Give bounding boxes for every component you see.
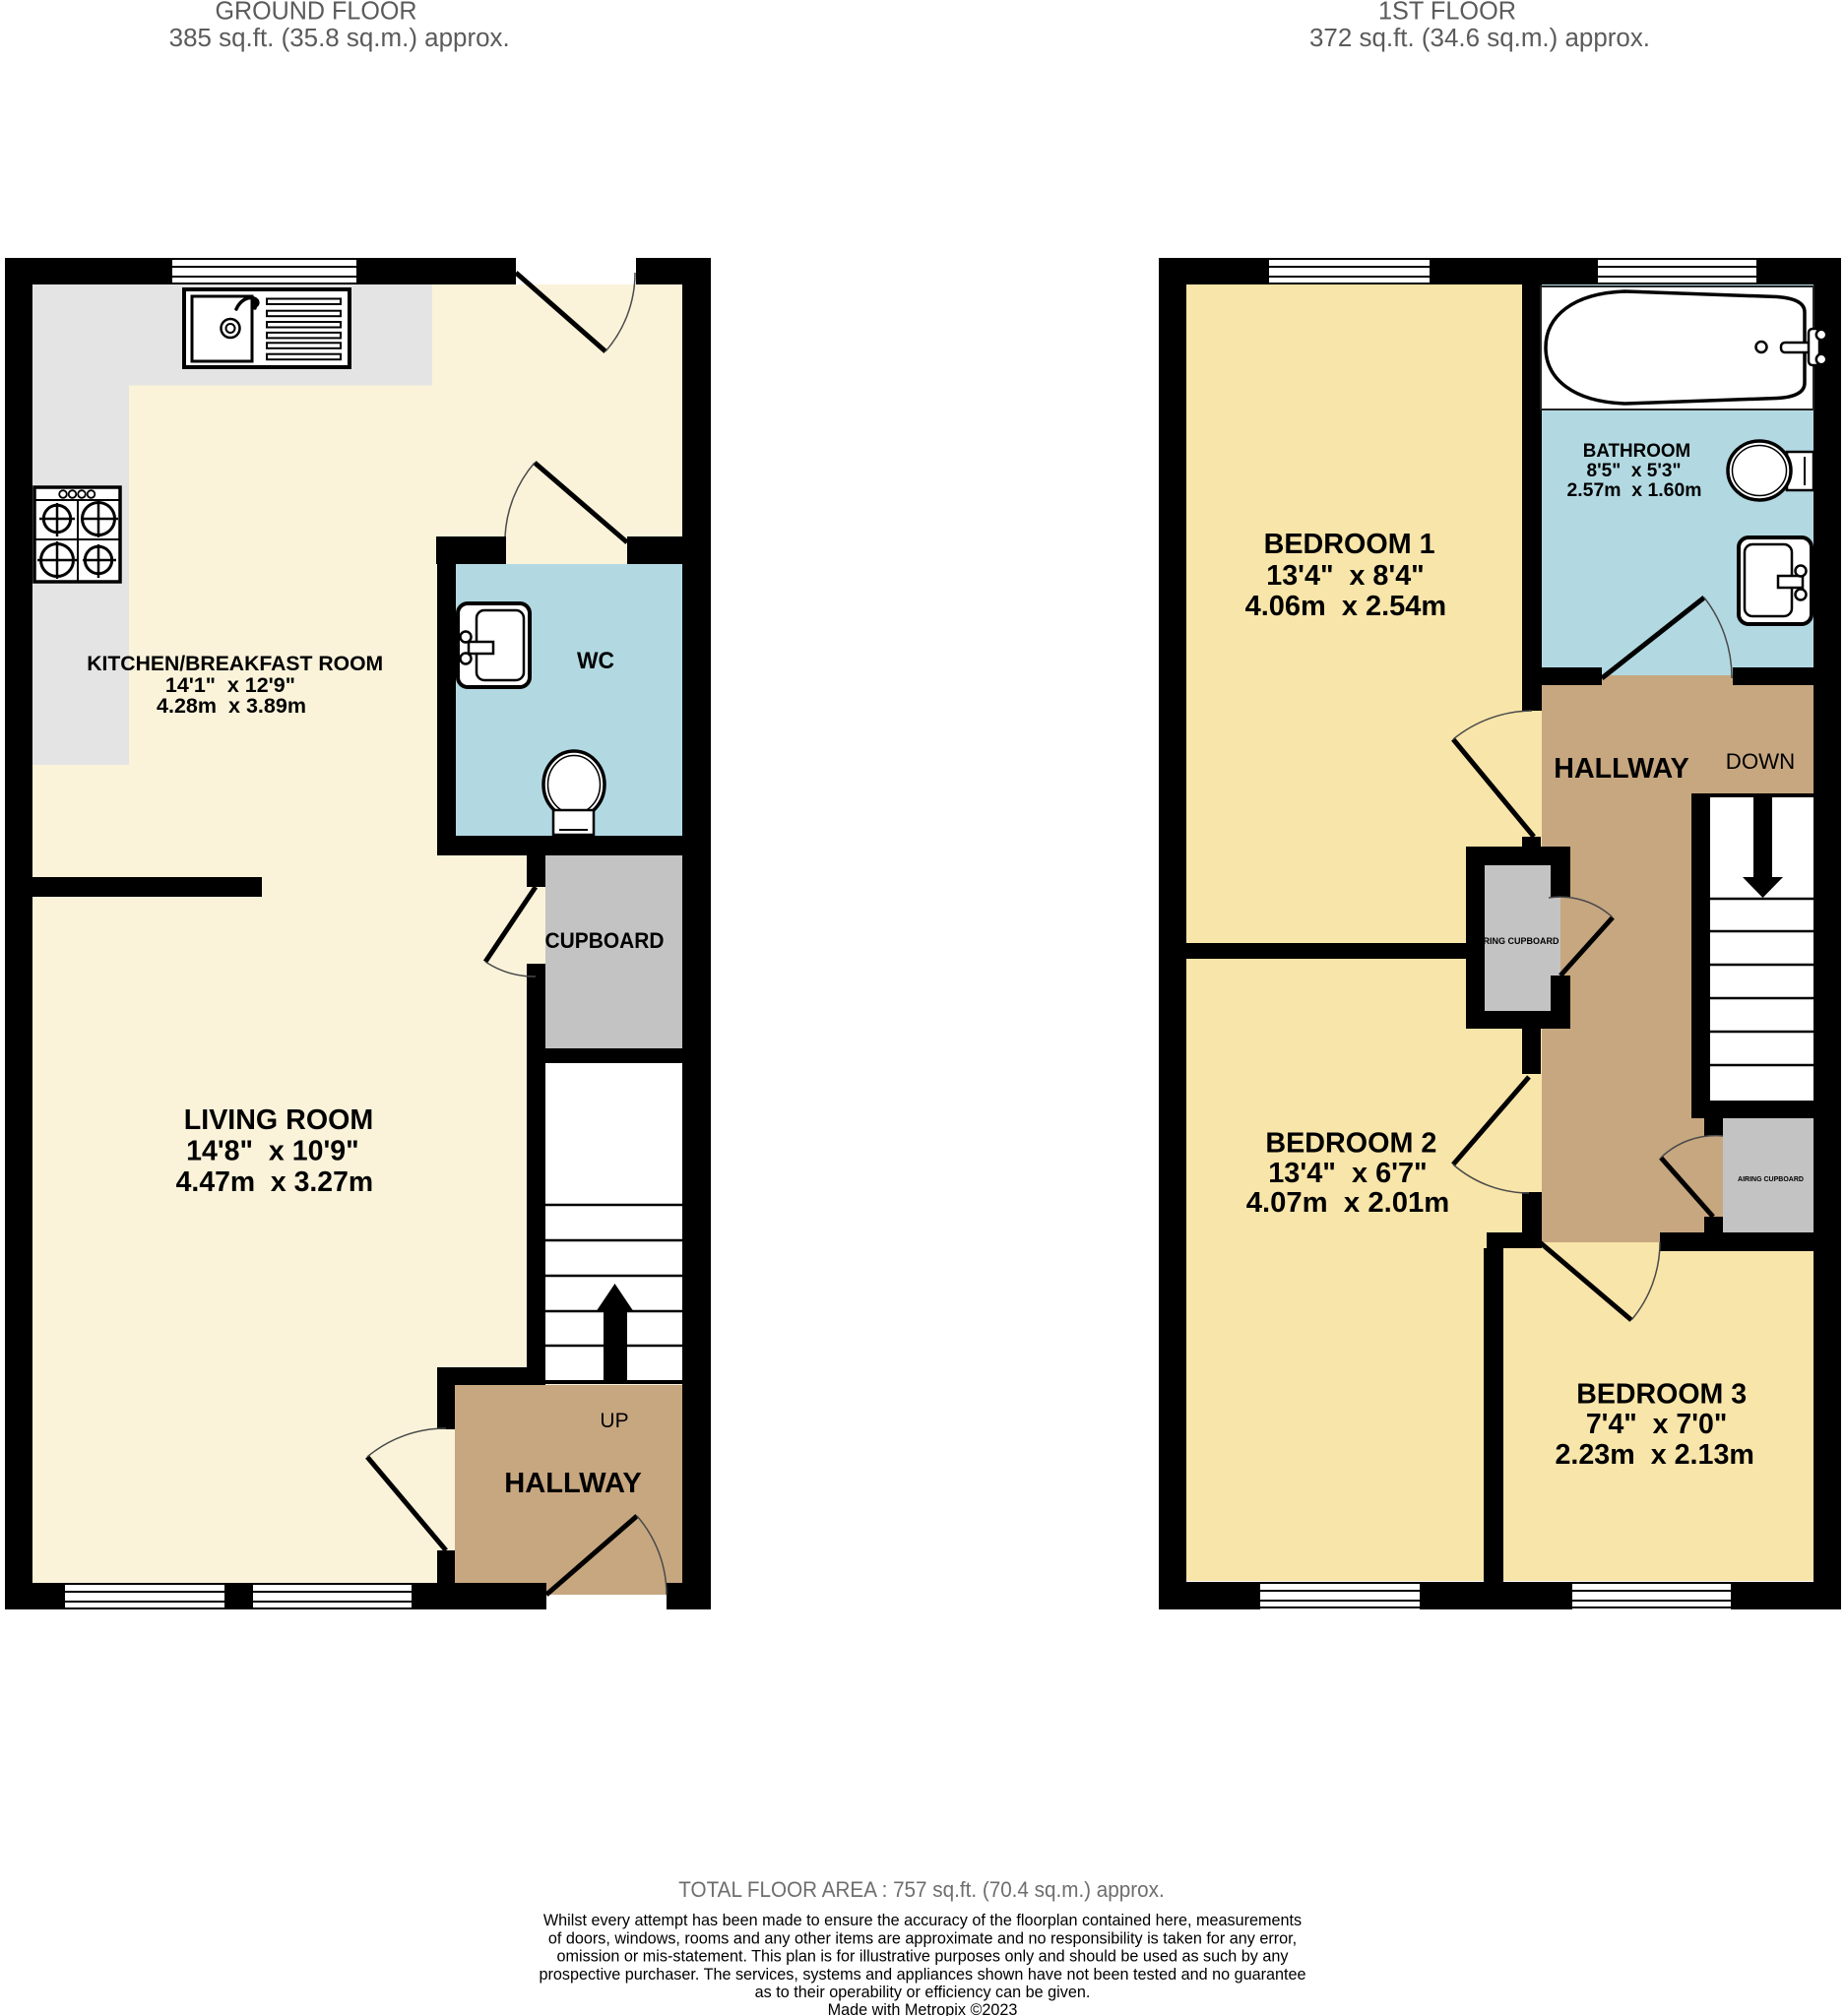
svg-text:13'4" x 6'7": 13'4" x 6'7" — [1268, 1158, 1428, 1189]
svg-text:372 sq.ft. (34.6 sq.m.) approx: 372 sq.ft. (34.6 sq.m.) approx. — [1309, 25, 1650, 52]
svg-text:1ST FLOOR: 1ST FLOOR — [1378, 0, 1516, 26]
svg-text:4.06m x 2.54m: 4.06m x 2.54m — [1245, 591, 1447, 622]
svg-text:7'4" x 7'0": 7'4" x 7'0" — [1586, 1409, 1728, 1440]
svg-text:TOTAL FLOOR AREA : 757 sq.ft.: TOTAL FLOOR AREA : 757 sq.ft. (70.4 sq.m… — [678, 1877, 1165, 1902]
svg-text:14'8" x 10'9": 14'8" x 10'9" — [186, 1136, 359, 1167]
svg-text:RING CUPBOARD: RING CUPBOARD — [1483, 936, 1559, 946]
svg-text:385 sq.ft. (35.8 sq.m.) approx: 385 sq.ft. (35.8 sq.m.) approx. — [169, 25, 510, 52]
svg-text:BATHROOM: BATHROOM — [1583, 441, 1691, 462]
svg-text:8'5" x 5'3": 8'5" x 5'3" — [1587, 461, 1682, 481]
svg-text:CUPBOARD: CUPBOARD — [545, 928, 665, 953]
svg-text:4.07m x 2.01m: 4.07m x 2.01m — [1246, 1187, 1450, 1219]
svg-text:4.28m x 3.89m: 4.28m x 3.89m — [157, 694, 306, 718]
svg-text:GROUND FLOOR: GROUND FLOOR — [216, 0, 417, 26]
svg-text:BEDROOM 1: BEDROOM 1 — [1264, 529, 1435, 560]
svg-text:KITCHEN/BREAKFAST ROOM: KITCHEN/BREAKFAST ROOM — [87, 652, 383, 675]
svg-text:WC: WC — [577, 648, 614, 674]
svg-text:Made with Metropix ©2023: Made with Metropix ©2023 — [828, 2001, 1018, 2016]
svg-text:13'4" x 8'4": 13'4" x 8'4" — [1266, 560, 1425, 592]
svg-text:HALLWAY: HALLWAY — [1554, 753, 1689, 785]
svg-text:2.57m x 1.60m: 2.57m x 1.60m — [1567, 480, 1702, 501]
svg-text:HALLWAY: HALLWAY — [504, 1468, 642, 1499]
svg-text:of doors, windows, rooms and a: of doors, windows, rooms and any other i… — [548, 1929, 1297, 1947]
svg-text:Whilst every attempt has been: Whilst every attempt has been made to en… — [543, 1912, 1302, 1929]
svg-text:4.47m x 3.27m: 4.47m x 3.27m — [176, 1166, 374, 1198]
svg-text:as to their operability or eff: as to their operability or efficiency ca… — [755, 1984, 1091, 2001]
svg-text:prospective purchaser. The ser: prospective purchaser. The services, sys… — [540, 1966, 1306, 1984]
svg-text:AIRING CUPBOARD: AIRING CUPBOARD — [1738, 1176, 1804, 1183]
svg-text:BEDROOM 3: BEDROOM 3 — [1576, 1379, 1747, 1411]
svg-text:UP: UP — [600, 1410, 628, 1432]
svg-text:omission or mis-statement. Thi: omission or mis-statement. This plan is … — [557, 1948, 1290, 1966]
svg-text:2.23m x 2.13m: 2.23m x 2.13m — [1555, 1439, 1754, 1471]
svg-text:LIVING ROOM: LIVING ROOM — [184, 1104, 374, 1136]
svg-text:BEDROOM 2: BEDROOM 2 — [1265, 1128, 1436, 1160]
svg-text:DOWN: DOWN — [1726, 749, 1796, 774]
